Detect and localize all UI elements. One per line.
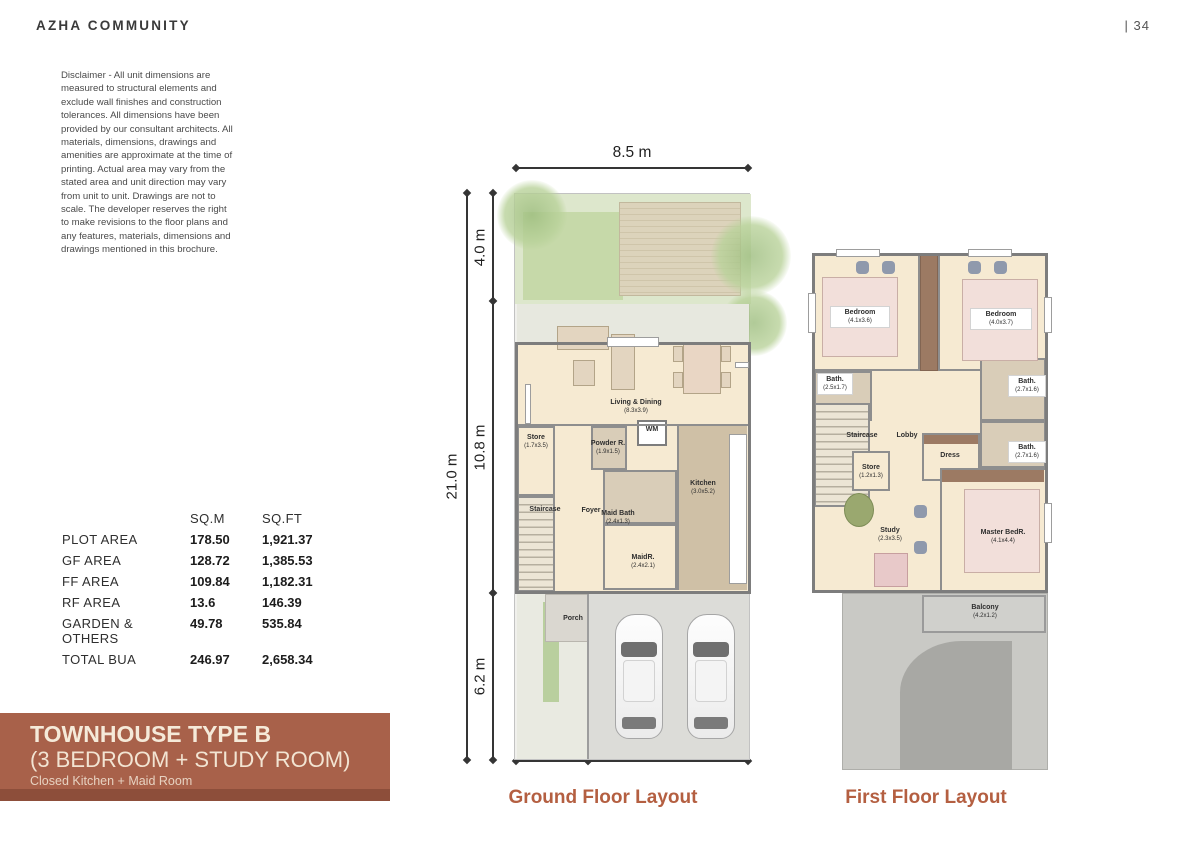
room-name: WM xyxy=(646,426,658,433)
room-name: Bedroom xyxy=(845,309,876,316)
room-label-balcony: Balcony (4.2x1.2) xyxy=(950,604,1020,620)
first-floor-plan: Bedroom (4.1x3.6) Bedroom (4.0x3.7) Bath… xyxy=(812,253,1048,770)
row-label: PLOT AREA xyxy=(62,532,190,547)
window xyxy=(1044,297,1052,333)
brochure-page: AZHA COMMUNITY | 34 Disclaimer - All uni… xyxy=(0,0,1190,859)
room-label-maid: MaidR. (2.4x2.1) xyxy=(608,554,678,570)
row-sqft: 535.84 xyxy=(262,616,352,646)
room-dims: (3.0x5.2) xyxy=(668,489,738,497)
room-label-living: Living & Dining (8.3x3.9) xyxy=(581,399,691,415)
car-rear-window xyxy=(622,717,656,729)
room-label-staircase: Staircase xyxy=(501,506,589,515)
room-dims: (2.4x1.3) xyxy=(583,519,653,527)
dimension-line-total xyxy=(466,193,468,760)
room-name: MaidR. xyxy=(632,554,655,561)
room-label-kitchen: Kitchen (3.0x5.2) xyxy=(668,480,738,496)
room-name: Bath. xyxy=(1018,378,1036,385)
tree-illustration xyxy=(711,216,791,296)
row-label: RF AREA xyxy=(62,595,190,610)
first-floor-caption: First Floor Layout xyxy=(816,787,1036,809)
room-label-bedroom1: Bedroom (4.1x3.6) xyxy=(830,306,890,328)
window xyxy=(968,249,1012,257)
room-name: Lobby xyxy=(897,432,918,439)
dimension-line-house xyxy=(492,301,494,593)
room-label-bedroom2: Bedroom (4.0x3.7) xyxy=(970,308,1032,330)
table-corner xyxy=(62,511,190,526)
window xyxy=(836,249,880,257)
room-dims: (4.0x3.7) xyxy=(972,320,1030,328)
column-header-sqm: SQ.M xyxy=(190,511,262,526)
unit-type-subtitle: (3 BEDROOM + STUDY ROOM) xyxy=(30,747,380,772)
room-name: Master BedR. xyxy=(981,529,1026,536)
column-header-sqft: SQ.FT xyxy=(262,511,352,526)
room-dims: (2.7x1.6) xyxy=(1010,453,1044,461)
room-name: Bath. xyxy=(1018,444,1036,451)
room-label-bath3: Bath. (2.7x1.6) xyxy=(1008,441,1046,463)
row-sqft: 146.39 xyxy=(262,595,352,610)
room-dims: (2.7x1.6) xyxy=(1010,387,1044,395)
room-name: Powder R. xyxy=(591,440,625,447)
dimension-line-garden xyxy=(492,193,494,301)
room-dims: (1.7x3.5) xyxy=(501,443,571,451)
room-label-store: Store (1.7x3.5) xyxy=(501,434,571,450)
room-dims: (4.2x1.2) xyxy=(950,613,1020,621)
row-sqm: 128.72 xyxy=(190,553,262,568)
area-table: SQ.M SQ.FT PLOT AREA 178.50 1,921.37 GF … xyxy=(62,511,352,667)
room-name: Staircase xyxy=(529,506,560,513)
banner-accent-strip xyxy=(0,789,390,801)
room-dims: (8.3x3.9) xyxy=(581,408,691,416)
row-label: GF AREA xyxy=(62,553,190,568)
row-label: FF AREA xyxy=(62,574,190,589)
unit-type-title: TOWNHOUSE TYPE B xyxy=(30,721,380,747)
room-name: Store xyxy=(527,434,545,441)
page-title: AZHA COMMUNITY xyxy=(36,18,191,33)
room-name: Dress xyxy=(940,452,959,459)
room-dims: (2.3x3.5) xyxy=(855,536,925,544)
car-illustration xyxy=(687,614,735,739)
row-sqm: 13.6 xyxy=(190,595,262,610)
ground-floor-plan: Living & Dining (8.3x3.9) Store (1.7x3.5… xyxy=(514,193,750,760)
window xyxy=(525,384,531,424)
row-sqm: 178.50 xyxy=(190,532,262,547)
room-label-maid-bath: Maid Bath (2.4x1.3) xyxy=(583,510,653,526)
dimension-label-total: 21.0 m xyxy=(444,447,461,507)
room-label-dress: Dress xyxy=(915,452,985,461)
disclaimer-text: Disclaimer - All unit dimensions are mea… xyxy=(61,69,235,257)
unit-type-tagline: Closed Kitchen + Maid Room xyxy=(30,774,380,788)
car-windshield xyxy=(693,642,729,657)
window xyxy=(735,362,749,368)
unit-type-banner: TOWNHOUSE TYPE B (3 BEDROOM + STUDY ROOM… xyxy=(0,713,390,789)
row-sqft: 2,658.34 xyxy=(262,652,352,667)
dimension-label-garden: 4.0 m xyxy=(472,218,489,278)
page-number: | 34 xyxy=(1125,18,1150,33)
room-label-bath1: Bath. (2.5x1.7) xyxy=(817,373,853,395)
car-roof xyxy=(695,660,727,702)
room-name: Kitchen xyxy=(690,480,716,487)
row-sqm: 246.97 xyxy=(190,652,262,667)
room-name: Living & Dining xyxy=(610,399,661,406)
row-sqft: 1,385.53 xyxy=(262,553,352,568)
row-label: GARDEN & OTHERS xyxy=(62,616,190,646)
room-dims: (1.2x1.3) xyxy=(836,473,906,481)
room-dims: (1.9x1.5) xyxy=(574,449,642,457)
row-sqm: 109.84 xyxy=(190,574,262,589)
car-illustration xyxy=(615,614,663,739)
room-name: Bedroom xyxy=(986,311,1017,318)
room-name: Porch xyxy=(563,615,583,622)
tree-illustration xyxy=(497,180,567,250)
room-name: Maid Bath xyxy=(601,510,634,517)
room-label-master: Master BedR. (4.1x4.4) xyxy=(970,529,1036,545)
room-name: Staircase xyxy=(846,432,877,439)
room-label-bath2: Bath. (2.7x1.6) xyxy=(1008,375,1046,397)
window xyxy=(1044,503,1052,543)
room-dims: (4.1x3.6) xyxy=(832,318,888,326)
ground-floor-caption: Ground Floor Layout xyxy=(493,787,713,809)
dimension-line-porch xyxy=(516,760,588,762)
room-dims: (2.5x1.7) xyxy=(819,385,851,393)
row-label: TOTAL BUA xyxy=(62,652,190,667)
row-sqm: 49.78 xyxy=(190,616,262,646)
room-label-store: Store (1.2x1.3) xyxy=(836,464,906,480)
room-label-staircase: Staircase xyxy=(825,432,899,441)
room-dims: (2.4x2.1) xyxy=(608,563,678,571)
row-sqft: 1,921.37 xyxy=(262,532,352,547)
room-name: Study xyxy=(880,527,899,534)
room-label-study: Study (2.3x3.5) xyxy=(855,527,925,543)
room-name: Store xyxy=(862,464,880,471)
car-rear-window xyxy=(694,717,728,729)
room-label-powder: Powder R. (1.9x1.5) xyxy=(574,440,642,456)
dimension-line-garage xyxy=(588,760,748,762)
car-roof xyxy=(623,660,655,702)
room-label-wm: WM xyxy=(637,426,667,435)
patio-door xyxy=(607,337,659,347)
car-windshield xyxy=(621,642,657,657)
room-dims: (4.1x4.4) xyxy=(970,538,1036,546)
window xyxy=(808,293,816,333)
dimension-line-width xyxy=(516,167,748,169)
room-label-porch: Porch xyxy=(538,615,608,624)
dimension-line-drive xyxy=(492,593,494,760)
row-sqft: 1,182.31 xyxy=(262,574,352,589)
roof-shadow-area xyxy=(900,641,1012,770)
dimension-label-house: 10.8 m xyxy=(472,418,489,478)
dimension-label-width: 8.5 m xyxy=(592,144,672,162)
dimension-label-drive: 6.2 m xyxy=(472,647,489,707)
room-name: Balcony xyxy=(971,604,998,611)
room-name: Bath. xyxy=(826,376,844,383)
